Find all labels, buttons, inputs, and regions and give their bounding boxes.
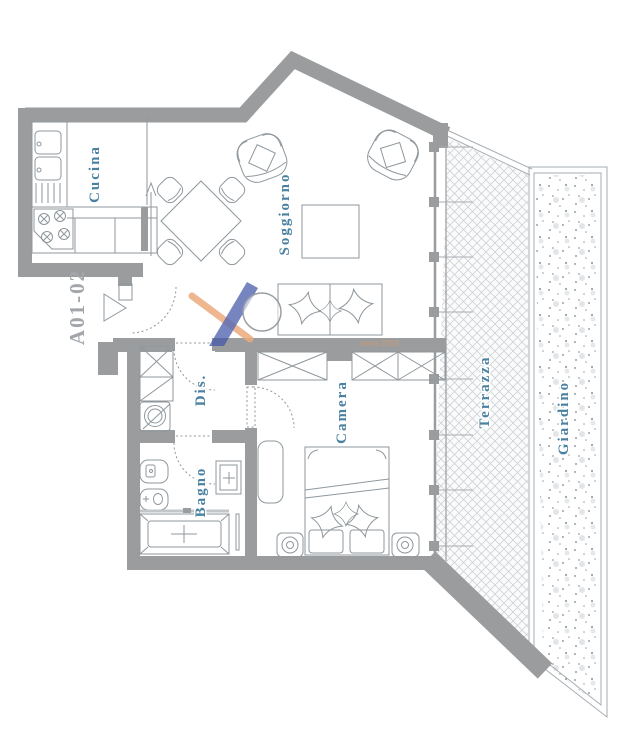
toilet: [140, 460, 168, 483]
room-label-giardino: Giardino: [556, 381, 572, 455]
bidet: [140, 489, 168, 510]
coffee-table: [302, 205, 359, 258]
bedroom-wardrobe: [258, 352, 445, 380]
armchair-2: [362, 125, 423, 185]
hall-wardrobe: [140, 346, 173, 401]
double-bed: [305, 447, 389, 555]
room-label-soggiorno: Soggiorno: [277, 172, 293, 255]
unit-label: A01-02: [65, 269, 89, 345]
nightstand-left: [277, 533, 303, 557]
kitchen-stove: [34, 209, 73, 249]
floor-plan-svg: since 2003 Cucina Soggiorno Dis. Bagno C…: [0, 0, 632, 732]
watermark-since-text: since 2003: [360, 339, 399, 348]
entrance-door: [104, 284, 176, 333]
entrance-marker: [104, 294, 126, 321]
hall-furniture: [140, 346, 173, 431]
nightstand-right: [392, 533, 419, 557]
bedroom-door: [247, 387, 294, 428]
room-label-terrazza: Terrazza: [477, 356, 493, 429]
bathtub: [140, 508, 239, 554]
room-label-cucina: Cucina: [87, 145, 103, 203]
sofa: [278, 284, 382, 335]
dresser: [258, 441, 283, 503]
dining-set: [154, 174, 247, 267]
room-label-camera: Camera: [334, 380, 350, 444]
floor-plan-page: since 2003 Cucina Soggiorno Dis. Bagno C…: [0, 0, 632, 732]
room-label-dis: Dis.: [193, 374, 209, 407]
kitchen-sink: [35, 131, 61, 203]
bathroom-fixtures: [140, 460, 241, 554]
bedroom-furniture: [258, 352, 445, 557]
washbasin: [216, 461, 241, 494]
washing-machine: [140, 402, 170, 431]
room-label-bagno: Bagno: [193, 467, 209, 518]
